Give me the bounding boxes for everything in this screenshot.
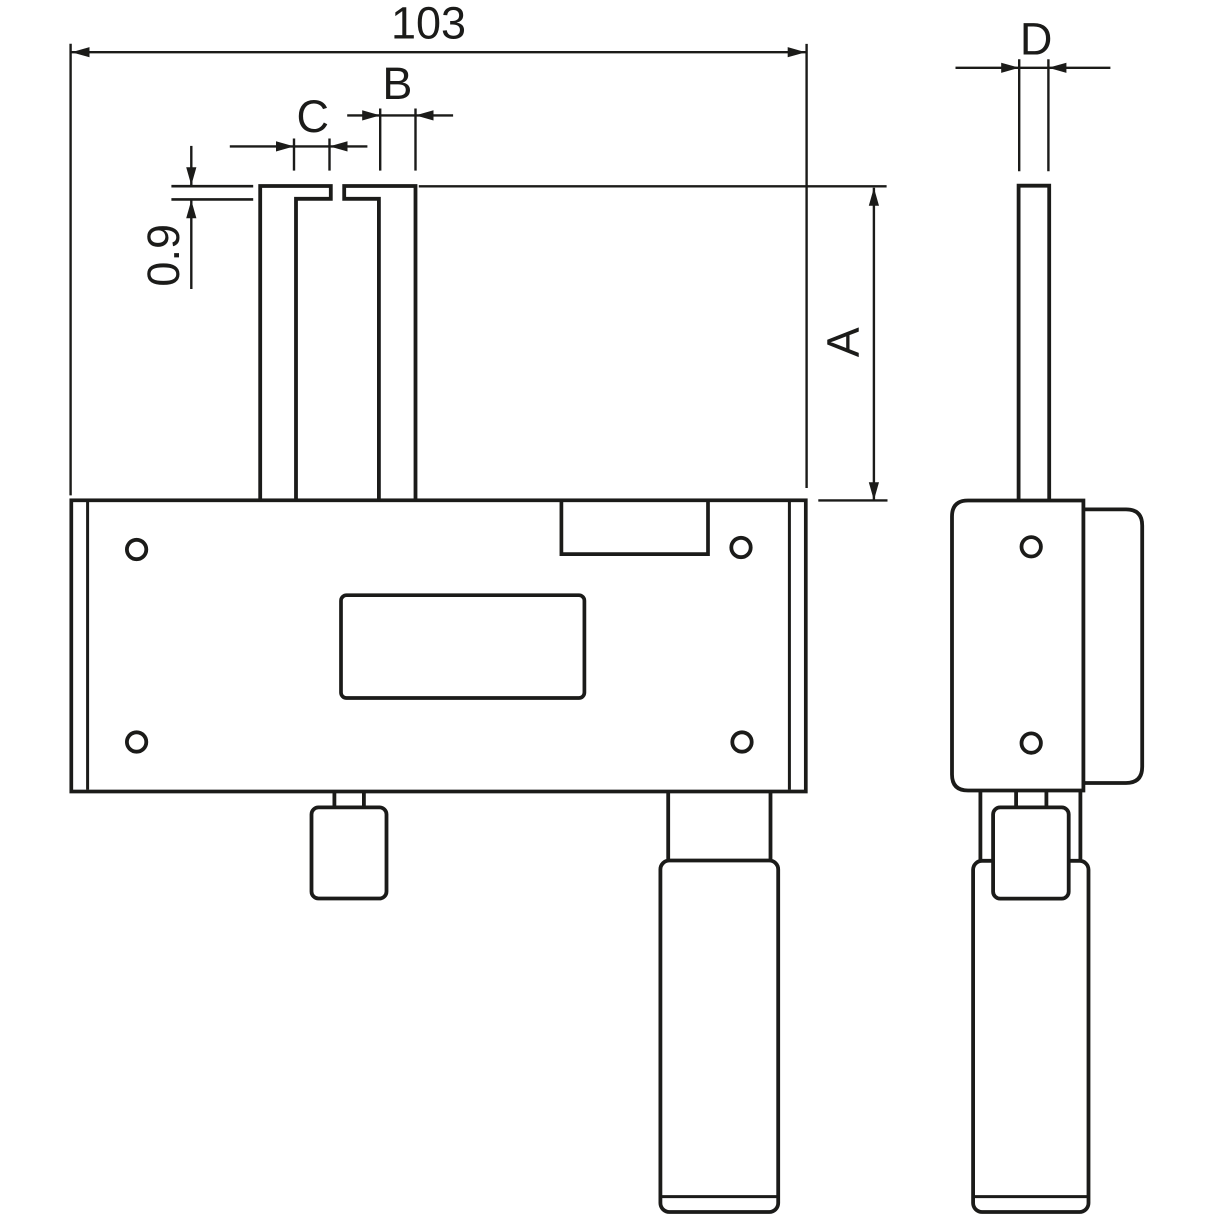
svg-text:D: D [1020,13,1053,64]
svg-text:B: B [382,58,412,109]
svg-text:C: C [297,91,330,142]
svg-text:103: 103 [391,0,466,49]
svg-text:0.9: 0.9 [138,224,189,287]
svg-text:A: A [818,327,869,357]
